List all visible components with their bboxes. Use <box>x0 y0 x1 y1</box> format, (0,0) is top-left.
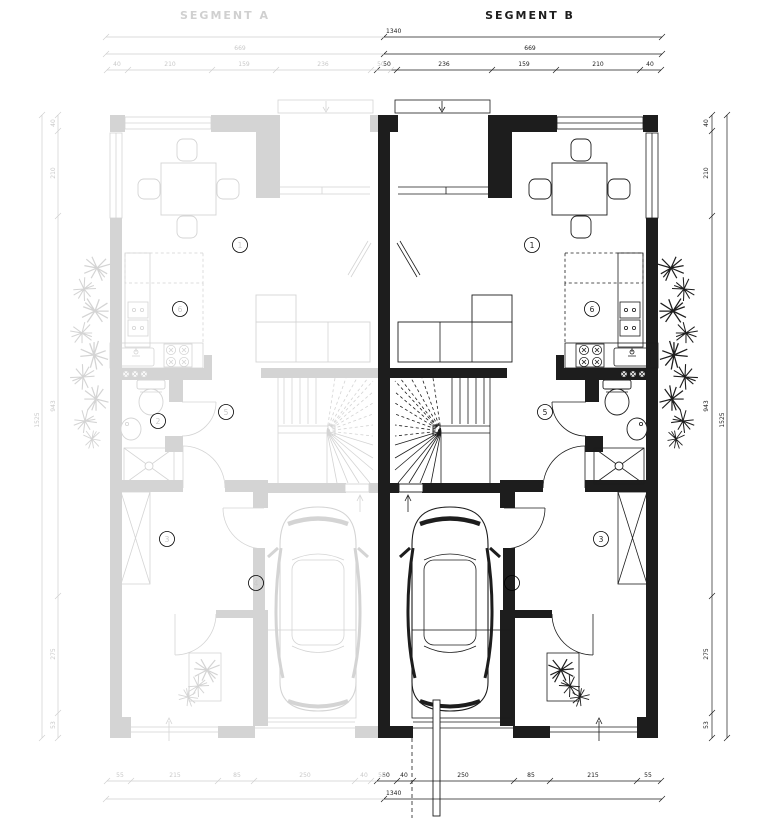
svg-text:40: 40 <box>113 61 121 68</box>
svg-text:943: 943 <box>50 400 57 412</box>
room-number-a-living: 1 <box>238 241 243 250</box>
svg-text:53: 53 <box>703 721 710 729</box>
svg-text:250: 250 <box>457 772 469 779</box>
svg-text:1525: 1525 <box>34 412 41 427</box>
room-number-garage: 4 <box>510 579 515 588</box>
svg-text:943: 943 <box>703 400 710 412</box>
svg-text:210: 210 <box>592 61 604 68</box>
svg-text:215: 215 <box>587 772 599 779</box>
svg-text:85: 85 <box>233 772 241 779</box>
segment-b-plan <box>378 100 702 741</box>
svg-text:1525: 1525 <box>719 412 726 427</box>
svg-text:159: 159 <box>518 61 530 68</box>
room-number-kitchen: 6 <box>590 305 595 314</box>
svg-text:236: 236 <box>438 61 450 68</box>
svg-text:85: 85 <box>527 772 535 779</box>
svg-text:275: 275 <box>50 648 57 660</box>
segment-b-title: SEGMENT B <box>485 9 575 22</box>
svg-text:210: 210 <box>50 167 57 179</box>
svg-text:669: 669 <box>234 45 246 52</box>
floor-plan: 1 6 5 3 4 1 6 2 5 3 4 SEGMENT A SEGMENT … <box>0 0 768 832</box>
dim-bottom-a: 55 215 85 250 40 50 <box>103 772 386 802</box>
dim-right: 40 210 943 275 53 1525 <box>703 112 730 741</box>
room-number-living: 1 <box>530 241 535 250</box>
room-labels-b: 1 6 5 3 4 <box>505 238 609 591</box>
room-number-a-hall: 5 <box>224 408 229 417</box>
segment-a-title: SEGMENT A <box>180 9 270 22</box>
svg-text:55: 55 <box>644 772 652 779</box>
dim-top-a: 669 40 210 159 236 50 <box>103 34 394 73</box>
svg-text:50: 50 <box>378 772 386 779</box>
dim-bottom-b: 50 40 250 85 215 55 1340 <box>374 772 665 802</box>
segment-a-plan <box>66 100 390 741</box>
svg-text:40: 40 <box>400 772 408 779</box>
dim-label: 1340 <box>386 28 401 35</box>
svg-text:210: 210 <box>703 167 710 179</box>
room-number-a-kitchen: 6 <box>178 305 183 314</box>
svg-text:50: 50 <box>377 61 385 68</box>
svg-text:40: 40 <box>646 61 654 68</box>
dim-label: 669 <box>524 45 536 52</box>
dim-label: 1340 <box>386 790 401 797</box>
dim-left: 40 210 943 275 53 1525 <box>34 112 61 741</box>
svg-text:275: 275 <box>703 648 710 660</box>
svg-text:53: 53 <box>50 721 57 729</box>
svg-text:210: 210 <box>164 61 176 68</box>
svg-text:40: 40 <box>703 119 710 127</box>
svg-text:250: 250 <box>299 772 311 779</box>
svg-text:236: 236 <box>317 61 329 68</box>
svg-text:40: 40 <box>360 772 368 779</box>
room-labels-a: 1 6 2 5 3 4 <box>151 238 264 591</box>
room-number-a-wc: 2 <box>156 417 161 426</box>
svg-text:215: 215 <box>169 772 181 779</box>
room-number-hall: 5 <box>543 408 548 417</box>
room-number-a-room3: 3 <box>165 535 170 544</box>
room-number-a-garage: 4 <box>254 579 259 588</box>
room-number-room3: 3 <box>599 535 604 544</box>
svg-text:55: 55 <box>116 772 124 779</box>
svg-text:40: 40 <box>50 119 57 127</box>
svg-text:159: 159 <box>238 61 250 68</box>
dim-top-b: 1340 669 50 236 159 210 40 <box>374 28 665 73</box>
